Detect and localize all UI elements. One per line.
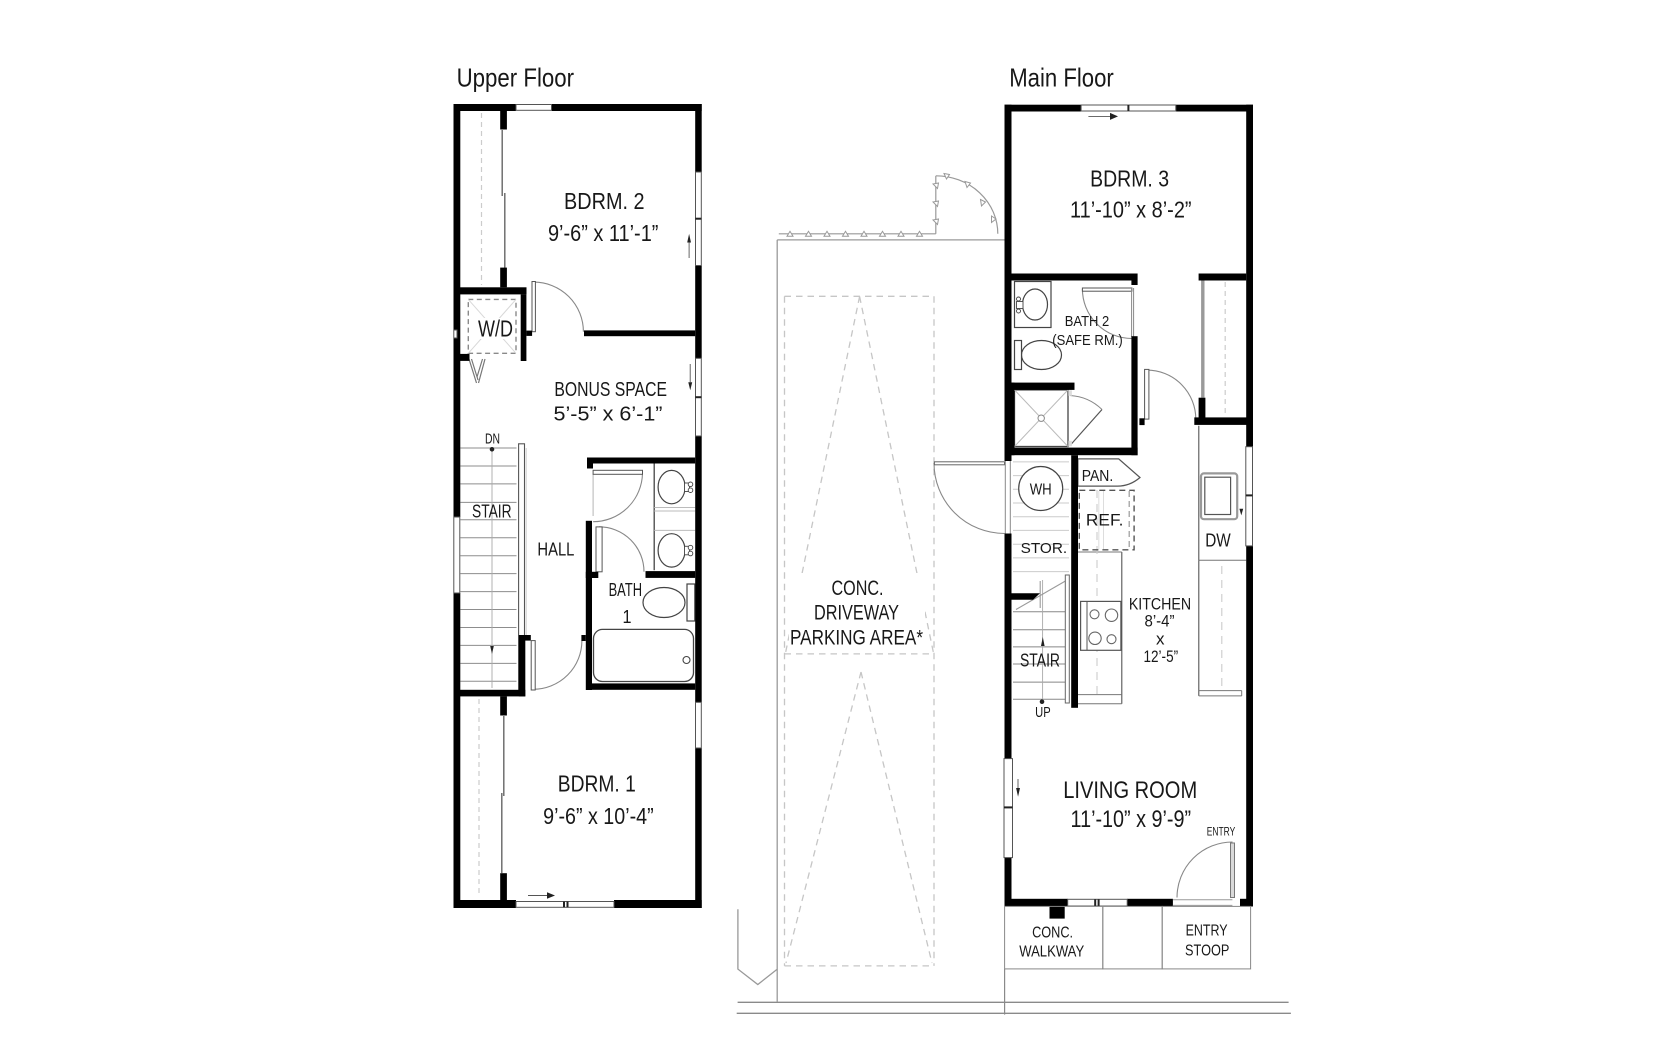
svg-text:(SAFE RM.): (SAFE RM.) bbox=[1052, 332, 1123, 349]
svg-text:8’-4”: 8’-4” bbox=[1145, 612, 1175, 631]
svg-text:BATH: BATH bbox=[609, 580, 642, 600]
svg-text:11’-10” x 8’-2”: 11’-10” x 8’-2” bbox=[1070, 197, 1192, 223]
svg-text:STOOP: STOOP bbox=[1185, 943, 1229, 960]
svg-text:UP: UP bbox=[1035, 705, 1051, 721]
svg-text:CONC.: CONC. bbox=[1032, 924, 1073, 941]
svg-text:REF.: REF. bbox=[1086, 511, 1124, 530]
svg-text:PAN.: PAN. bbox=[1082, 468, 1114, 485]
svg-text:x: x bbox=[1156, 630, 1165, 649]
svg-text:STAIR: STAIR bbox=[472, 502, 512, 522]
svg-text:ENTRY: ENTRY bbox=[1186, 923, 1228, 940]
svg-text:STAIR: STAIR bbox=[1020, 651, 1060, 671]
svg-text:ENTRY: ENTRY bbox=[1207, 827, 1236, 839]
svg-text:1: 1 bbox=[623, 607, 632, 627]
svg-text:WALKWAY: WALKWAY bbox=[1019, 944, 1084, 961]
svg-text:BONUS SPACE: BONUS SPACE bbox=[554, 378, 667, 401]
svg-text:5’-5” x 6’-1”: 5’-5” x 6’-1” bbox=[554, 403, 663, 426]
svg-text:9’-6” x 11’-1”: 9’-6” x 11’-1” bbox=[548, 220, 659, 246]
svg-text:DRIVEWAY: DRIVEWAY bbox=[814, 602, 899, 625]
svg-text:BDRM. 2: BDRM. 2 bbox=[564, 188, 645, 214]
svg-text:Upper Floor: Upper Floor bbox=[457, 63, 575, 93]
svg-text:CONC.: CONC. bbox=[832, 577, 884, 600]
svg-text:PARKING AREA*: PARKING AREA* bbox=[790, 626, 923, 649]
svg-text:9’-6” x 10’-4”: 9’-6” x 10’-4” bbox=[543, 803, 654, 829]
svg-text:BDRM. 1: BDRM. 1 bbox=[558, 771, 636, 797]
svg-text:Main Floor: Main Floor bbox=[1009, 63, 1114, 93]
svg-text:DN: DN bbox=[485, 432, 500, 448]
svg-text:11’-10” x 9’-9”: 11’-10” x 9’-9” bbox=[1071, 806, 1192, 833]
svg-text:BDRM. 3: BDRM. 3 bbox=[1090, 165, 1169, 191]
svg-text:W/D: W/D bbox=[478, 316, 513, 342]
svg-text:STOR.: STOR. bbox=[1021, 540, 1068, 557]
svg-text:BATH 2: BATH 2 bbox=[1065, 313, 1110, 330]
svg-text:DW: DW bbox=[1205, 531, 1231, 551]
svg-text:LIVING ROOM: LIVING ROOM bbox=[1063, 777, 1197, 804]
svg-text:12’-5”: 12’-5” bbox=[1144, 647, 1179, 666]
svg-text:KITCHEN: KITCHEN bbox=[1129, 594, 1191, 613]
svg-text:WH: WH bbox=[1030, 481, 1052, 498]
svg-text:HALL: HALL bbox=[537, 540, 574, 560]
